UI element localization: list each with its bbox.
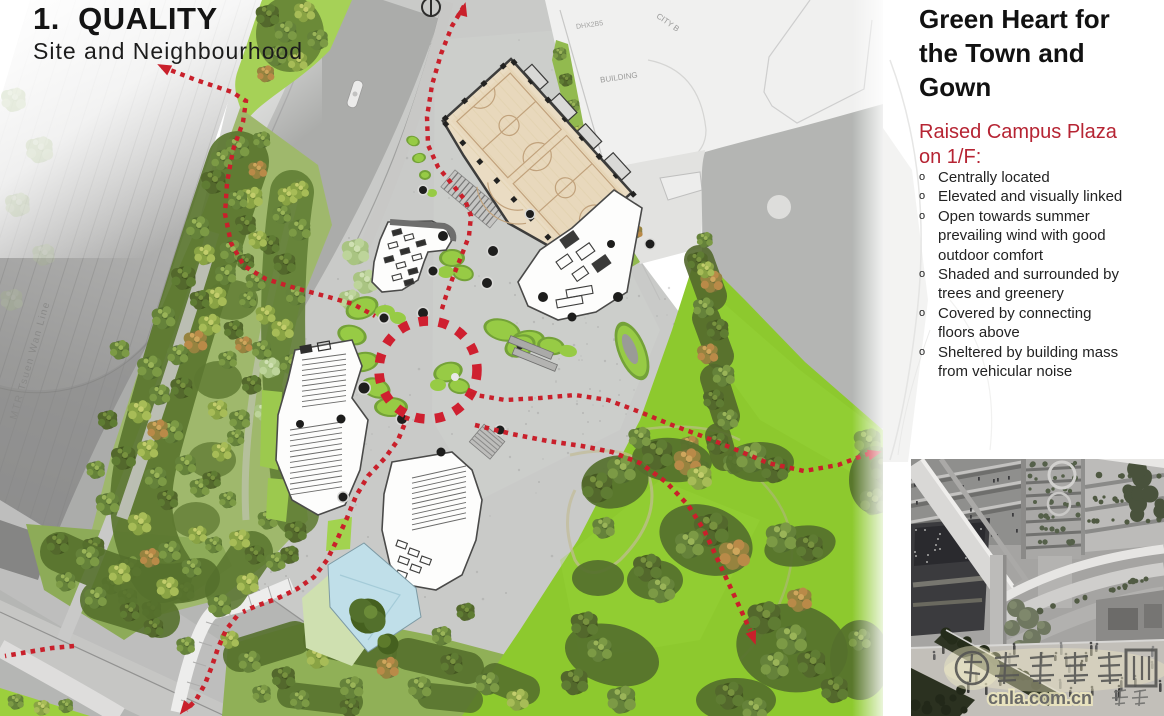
svg-text:cnla.com.cn: cnla.com.cn	[988, 688, 1092, 708]
